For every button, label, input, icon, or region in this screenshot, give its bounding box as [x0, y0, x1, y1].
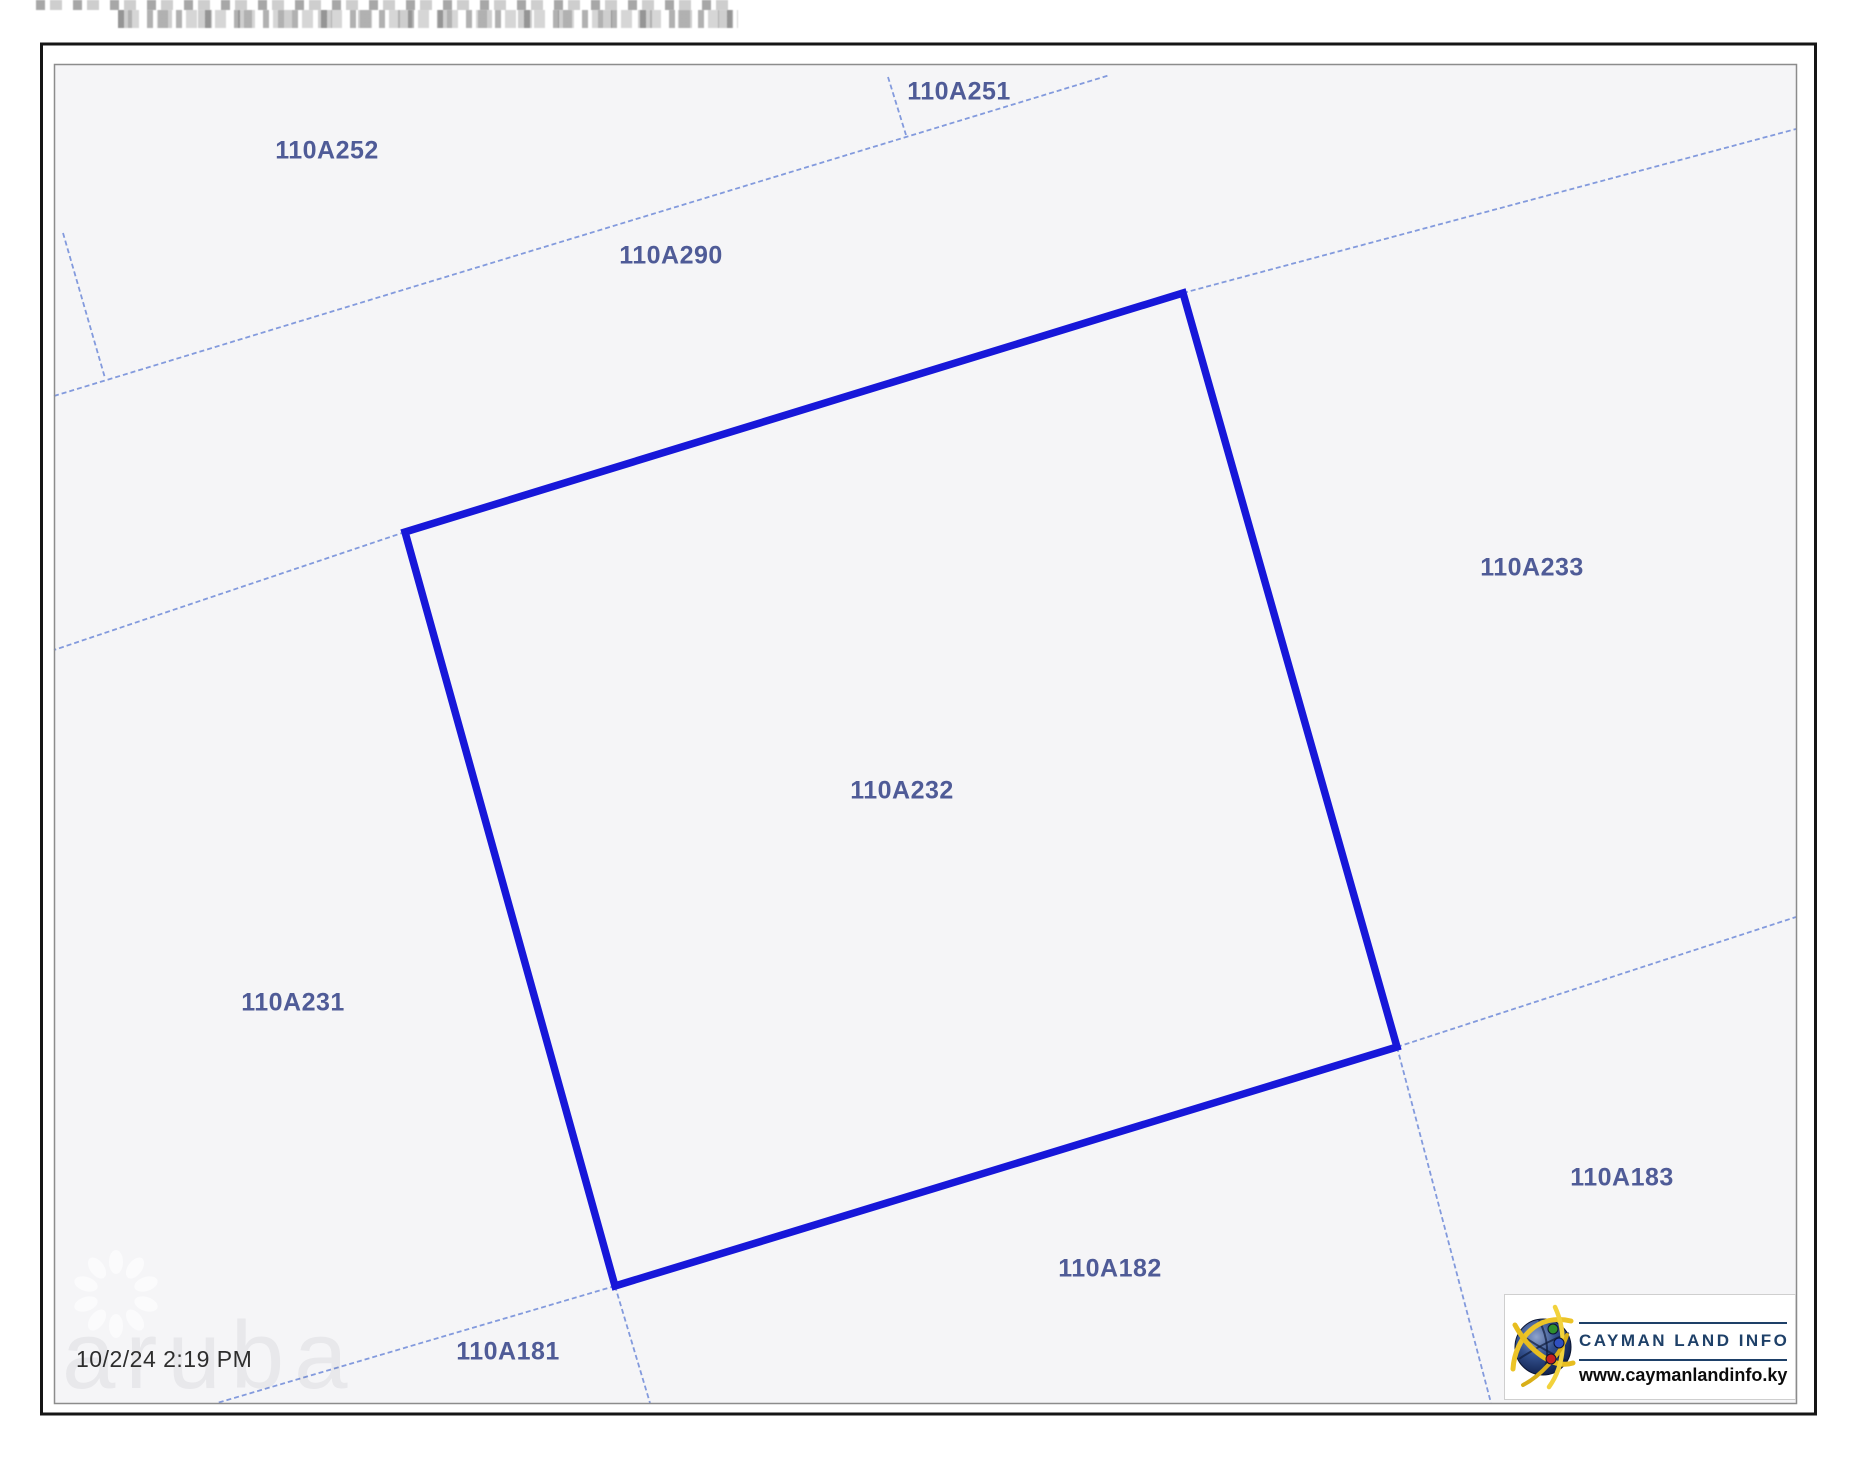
parcel-label-110a182[interactable]: 110A182: [1058, 1255, 1162, 1284]
timestamp: 10/2/24 2:19 PM: [76, 1346, 252, 1373]
parcel-label-110a233[interactable]: 110A233: [1480, 554, 1584, 583]
parcel-label-110a231[interactable]: 110A231: [241, 989, 345, 1018]
logo-divider: [1579, 1322, 1787, 1324]
parcel-label-110a181[interactable]: 110A181: [456, 1338, 560, 1367]
parcel-label-110a251[interactable]: 110A251: [907, 78, 1011, 107]
parcel-label-110a252[interactable]: 110A252: [275, 137, 379, 166]
logo-url-link[interactable]: www.caymanlandinfo.ky: [1579, 1365, 1787, 1386]
parcel-label-110a290[interactable]: 110A290: [619, 242, 723, 271]
parcel-label-110a232-selected[interactable]: 110A232: [850, 777, 954, 806]
globe-icon: [1509, 1299, 1579, 1397]
logo-text-block: CAYMAN LAND INFO www.caymanlandinfo.ky: [1579, 1295, 1787, 1399]
logo-title: CAYMAN LAND INFO: [1579, 1331, 1787, 1351]
cadastral-map-page: aruba 110A252 110A251 110A290 110A233 11…: [0, 0, 1860, 1458]
map-canvas[interactable]: [0, 0, 1860, 1458]
logo-divider: [1579, 1359, 1787, 1361]
cayman-land-info-logo: CAYMAN LAND INFO www.caymanlandinfo.ky: [1504, 1294, 1796, 1400]
map-background: [55, 65, 1797, 1404]
parcel-label-110a183[interactable]: 110A183: [1570, 1164, 1674, 1193]
